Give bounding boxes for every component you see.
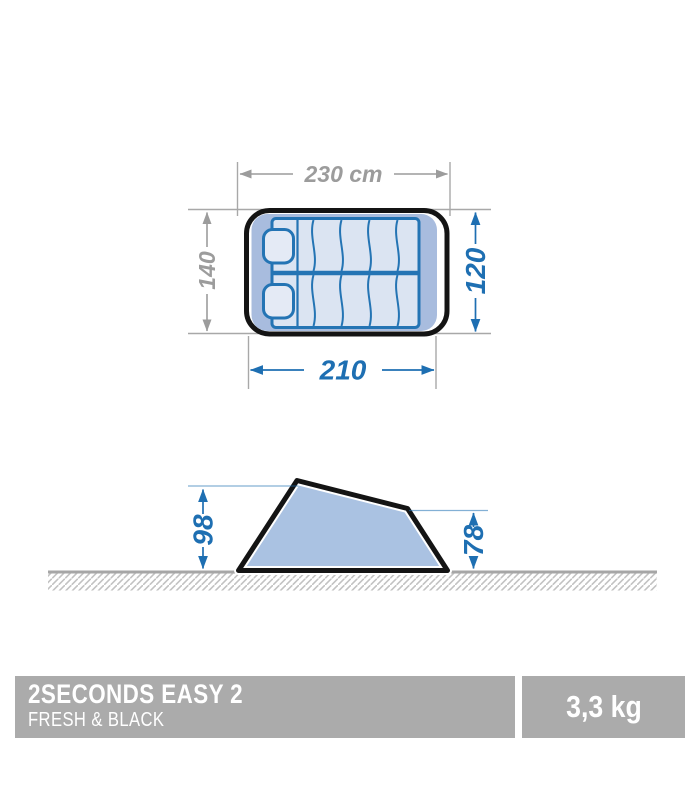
dim-total-width: 230 cm: [240, 161, 448, 187]
product-variant: FRESH & BLACK: [28, 709, 164, 731]
ground-hatching: [48, 574, 657, 591]
product-variant-row: FRESH & BLACK: [28, 709, 192, 731]
dim-total-width-label: 230 cm: [303, 161, 382, 187]
tent-side-profile: [239, 481, 448, 571]
pillow-top: [264, 230, 294, 264]
dim-floor-length-label: 210: [319, 355, 367, 386]
dim-depth-label: 140: [194, 251, 220, 290]
tent-top-view-body: [247, 211, 448, 335]
dim-inner-width-label: 120: [460, 247, 491, 294]
weight-value: 3,3 kg: [566, 689, 642, 725]
tent-dimensions-diagram: 230 cm 140 120 210: [0, 0, 700, 670]
pillow-bottom: [264, 285, 294, 319]
tent-top-view: 230 cm 140 120 210: [188, 161, 491, 389]
dim-front-height-label: 98: [188, 514, 219, 546]
product-dimensions-image: 230 cm 140 120 210: [0, 0, 700, 800]
dim-depth: 140: [194, 213, 220, 332]
sleeping-mats: [264, 219, 420, 328]
product-name-row: 2SECONDS EASY 2: [28, 682, 287, 706]
weight-badge: 3,3 kg: [522, 676, 685, 738]
tent-side-view: 98 78: [48, 481, 657, 591]
product-banner: 2SECONDS EASY 2 FRESH & BLACK: [15, 676, 515, 738]
dim-inner-width: 120: [460, 213, 491, 332]
product-name: 2SECONDS EASY 2: [28, 682, 243, 706]
dim-rear-height-label: 78: [458, 525, 489, 557]
dim-floor-length: 210: [251, 355, 435, 386]
